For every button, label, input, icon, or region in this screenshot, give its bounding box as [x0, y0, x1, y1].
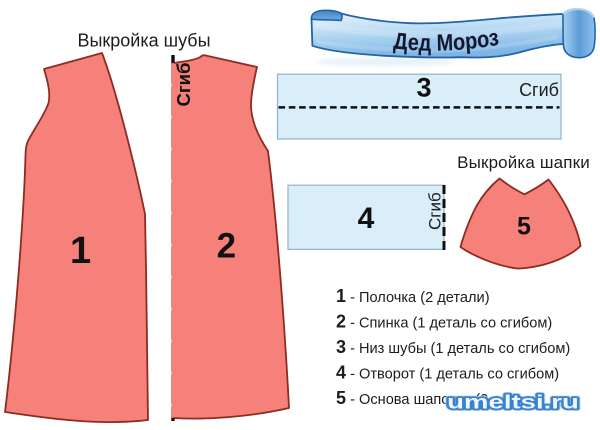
svg-text:5: 5 [517, 213, 531, 241]
svg-text:umeltsi.ru: umeltsi.ru [447, 392, 579, 413]
svg-text:4: 4 [358, 202, 375, 235]
svg-text:Сгиб: Сгиб [426, 192, 445, 230]
svg-text:1: 1 [70, 230, 91, 272]
svg-text:3: 3 [416, 72, 431, 102]
svg-text:2: 2 [217, 227, 236, 266]
svg-text:Выкройка шапки: Выкройка шапки [457, 153, 590, 172]
svg-text:Выкройка шубы: Выкройка шубы [77, 31, 210, 51]
svg-text:Сгиб: Сгиб [519, 80, 559, 100]
svg-text:Сгиб: Сгиб [173, 63, 194, 107]
